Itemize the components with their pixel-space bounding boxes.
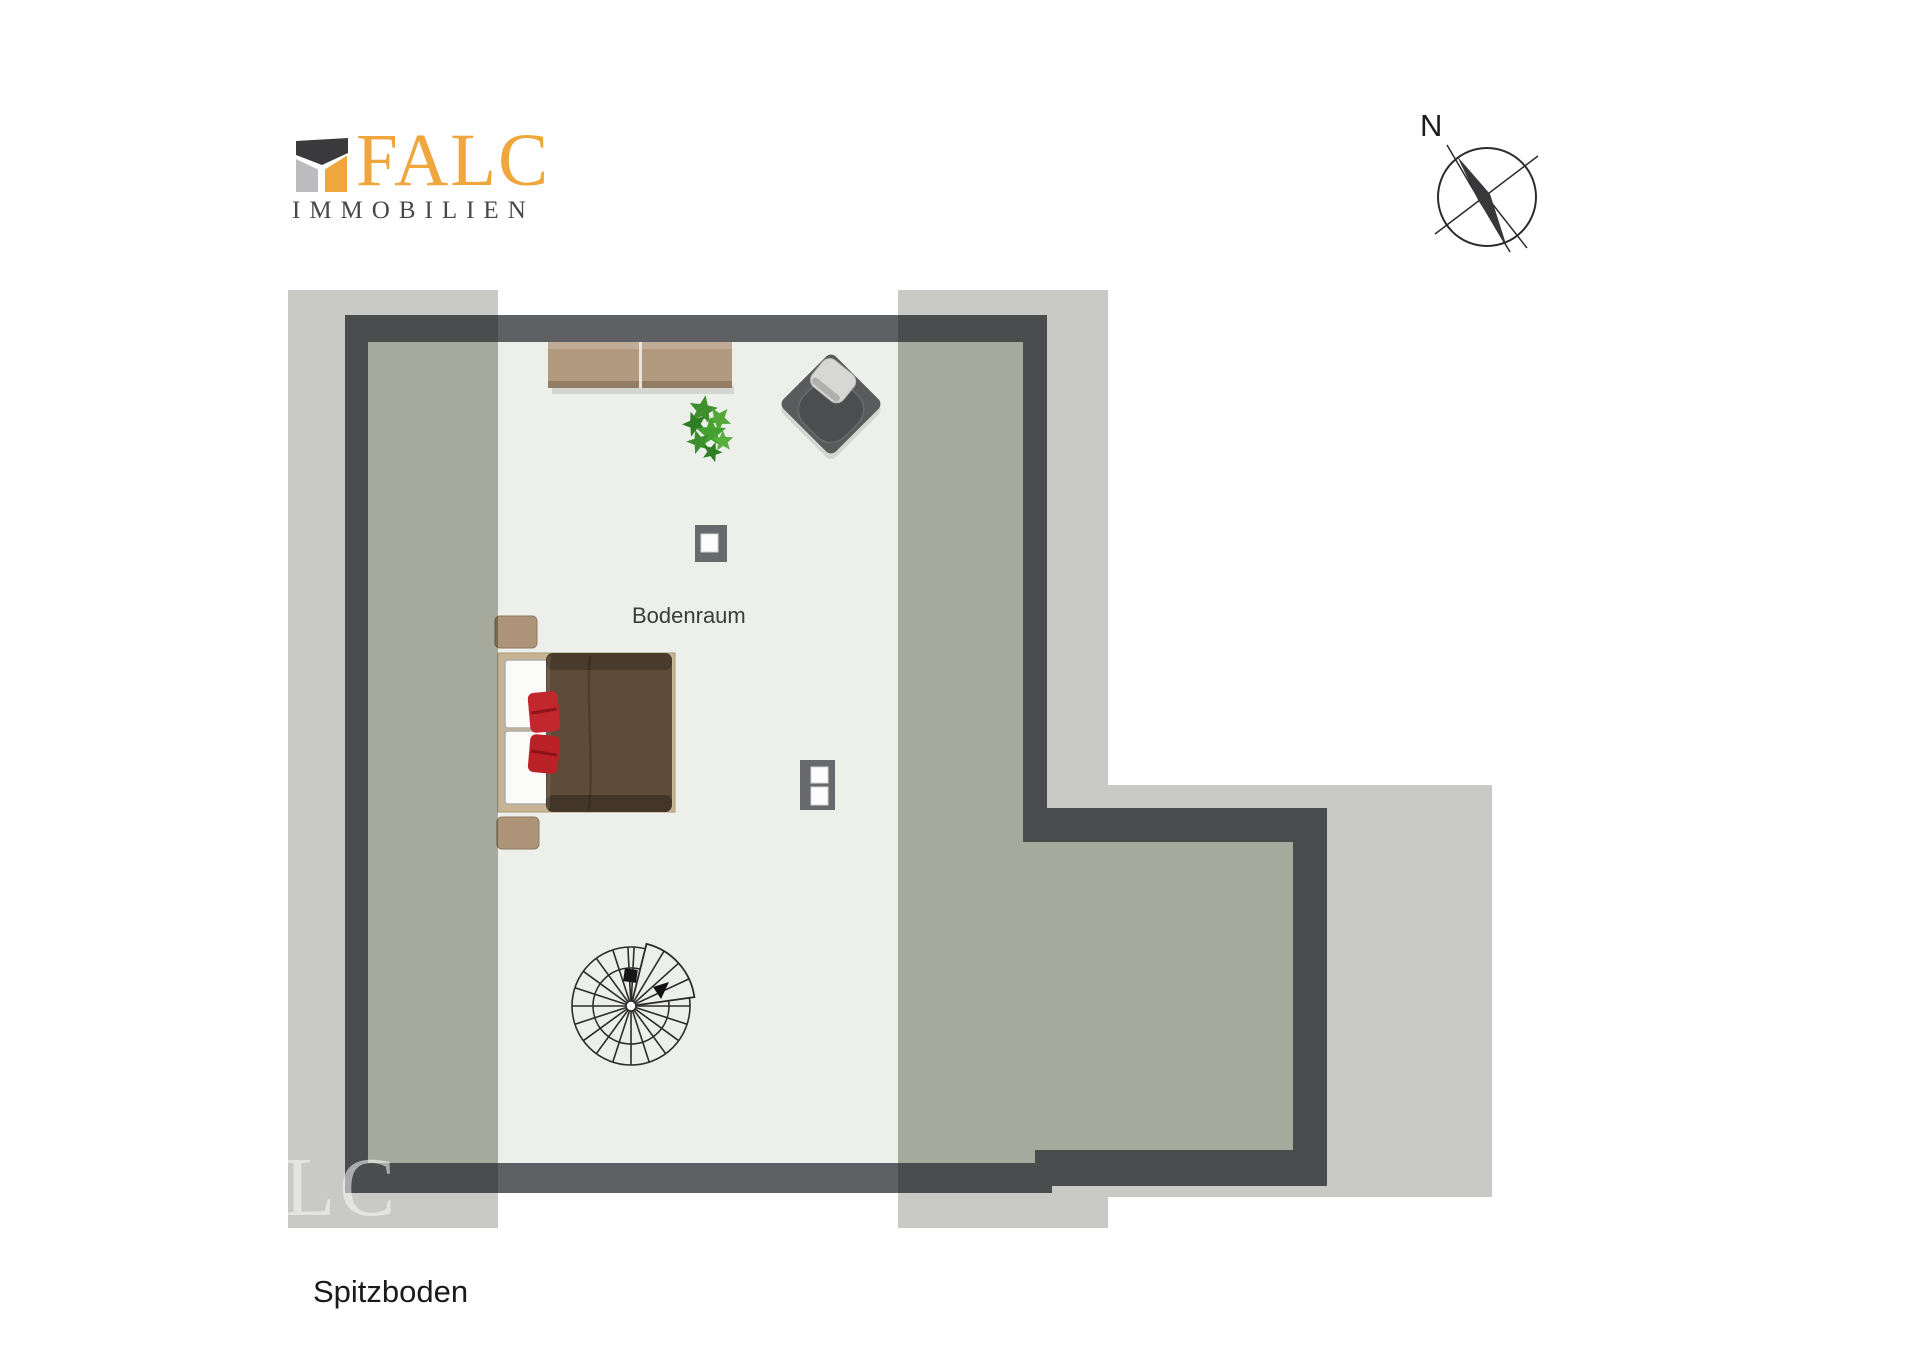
floorplan-page: FALC IMMOBILIEN N Bodenraum Spitzboden L… (0, 0, 1920, 1357)
floor-title: Spitzboden (313, 1276, 468, 1307)
nightstand-bottom (497, 817, 539, 849)
logo-wordmark: FALC (356, 123, 550, 198)
chimney-double (800, 760, 835, 810)
chimney-single (695, 525, 727, 562)
stair-entry-marker (623, 968, 638, 983)
compass-north-label: N (1420, 110, 1442, 141)
duvet (546, 653, 672, 812)
sideboard (548, 342, 734, 394)
logo-subtitle: IMMOBILIEN (292, 198, 535, 223)
room-label: Bodenraum (632, 605, 746, 627)
stair-center-post (626, 1001, 636, 1011)
watermark: LC (284, 1146, 399, 1230)
pillow-top (527, 691, 560, 733)
pillow-bottom (527, 734, 560, 774)
nightstand-top (495, 616, 537, 648)
